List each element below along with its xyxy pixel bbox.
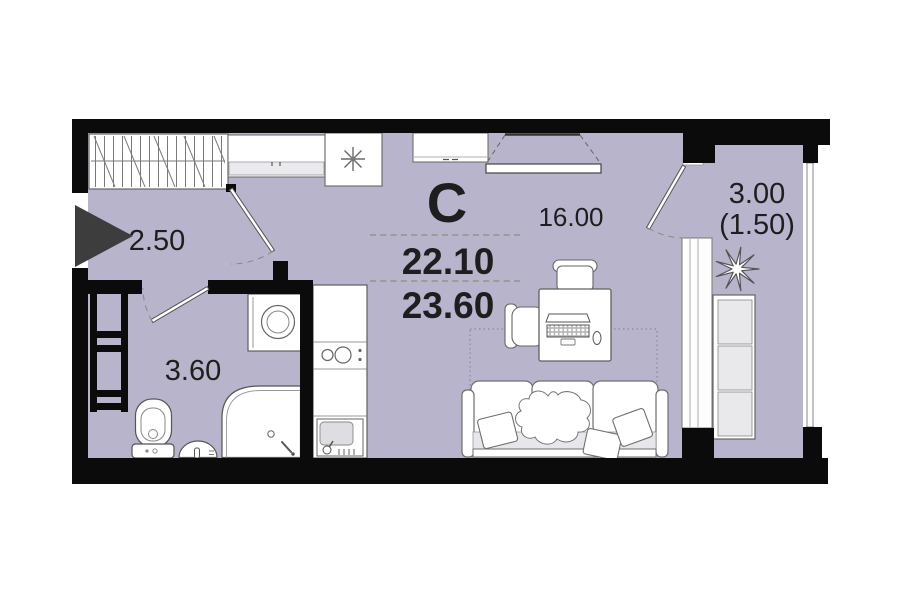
divider-dashed-top: [370, 234, 520, 236]
label-hallway-area: 2.50: [113, 225, 201, 258]
washing-machine-icon: [248, 294, 303, 351]
wall-cabinet-icon: [413, 133, 488, 162]
floor-plan: С 16.00 2.50 3.60 3.00 (1.50) 22.10 23.6…: [0, 0, 900, 600]
label-total-area: 23.60: [389, 285, 507, 327]
wardrobe-icon: [89, 134, 228, 189]
fridge-icon: [325, 133, 382, 186]
label-balcony-area-coefficient: (1.50): [709, 209, 805, 242]
plan-letter: С: [416, 172, 478, 234]
kitchen-column-icon: [313, 285, 367, 458]
floor-balcony-doorway: [683, 163, 712, 240]
label-balcony-area: 3.00: [713, 178, 801, 211]
toilet-icon: [132, 399, 174, 458]
office-chair-icon: [505, 304, 544, 348]
stool-icon: [553, 260, 597, 291]
mouse-icon: [593, 332, 601, 345]
balcony-shelf-icon: [713, 295, 755, 439]
kitchen-counter-icon: [228, 135, 325, 177]
kitchen-sink-icon: [317, 419, 363, 456]
label-living-area-total: 22.10: [389, 241, 507, 283]
label-bathroom-area: 3.60: [149, 355, 237, 388]
label-living-room-area: 16.00: [526, 202, 616, 233]
sofa-icon: [462, 381, 668, 461]
divider-dashed-bottom: [370, 280, 520, 282]
balcony-glazing: [806, 163, 814, 427]
shower-icon: [222, 386, 301, 458]
